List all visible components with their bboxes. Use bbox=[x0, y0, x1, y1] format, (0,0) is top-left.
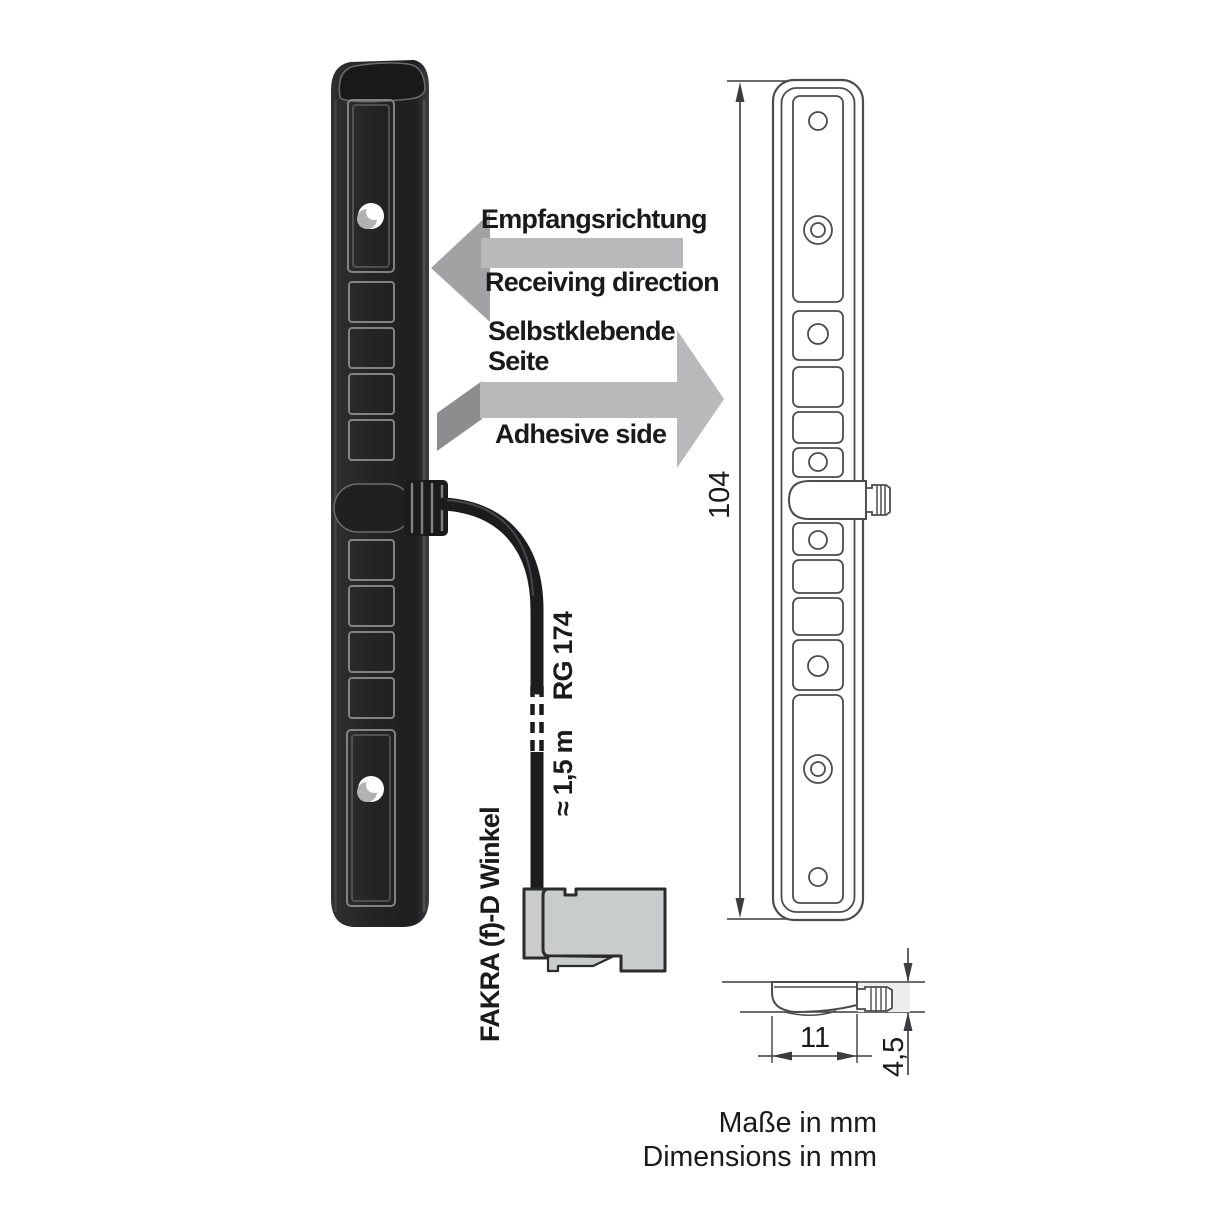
figure-graphics bbox=[0, 0, 1214, 1214]
receiving-direction-label-de: Empfangsrichtung bbox=[481, 205, 707, 235]
adhesive-side-label-de: Selbstklebende Seite bbox=[488, 317, 675, 376]
dim-width-value: 11 bbox=[800, 1023, 830, 1055]
right-arrow-tail bbox=[437, 381, 482, 451]
snap-in-connector bbox=[789, 481, 890, 519]
dim-height-value: 104 bbox=[705, 471, 737, 519]
cable-break-dashes bbox=[533, 686, 542, 754]
fakra-connector-label: FAKRA (f)-D Winkel bbox=[476, 807, 506, 1042]
dim-arrow-left-icon bbox=[772, 1052, 792, 1061]
dim-arrow-right-icon bbox=[837, 1052, 857, 1061]
dim-depth-value: 4,5 bbox=[879, 1037, 911, 1077]
dimension-drawing bbox=[722, 80, 925, 1075]
cable-spec-label: ≈ 1,5 mRG 174 bbox=[549, 612, 579, 816]
units-note-de: Maße in mm bbox=[437, 1106, 877, 1140]
fakra-latch bbox=[548, 956, 612, 971]
units-note: Maße in mm Dimensions in mm bbox=[437, 1106, 877, 1174]
cable-length-label: ≈ 1,5 m bbox=[548, 730, 578, 816]
antenna-top-face bbox=[339, 63, 425, 102]
adhesive-side-label-en: Adhesive side bbox=[495, 420, 666, 450]
side-view-outline bbox=[772, 982, 892, 1015]
antenna-datasheet-figure: Empfangsrichtung Receiving direction Sel… bbox=[0, 0, 1214, 1214]
adhesive-side-label-de-line2: Seite bbox=[488, 346, 549, 376]
receiving-direction-label-en: Receiving direction bbox=[485, 268, 719, 298]
cable-type-label: RG 174 bbox=[548, 612, 578, 700]
antenna-connector-boss bbox=[334, 480, 448, 536]
dim-arrow-down-icon bbox=[904, 963, 913, 982]
units-note-en: Dimensions in mm bbox=[437, 1140, 877, 1174]
dim-arrow-up-icon bbox=[904, 1012, 913, 1031]
dim-arrow-up-icon bbox=[736, 82, 745, 102]
fakra-connector bbox=[524, 889, 665, 971]
dim-arrow-down-icon bbox=[736, 898, 745, 918]
side-view-connector bbox=[857, 987, 892, 1011]
left-arrow-bar bbox=[481, 238, 683, 268]
adhesive-side-label-de-line1: Selbstklebende bbox=[488, 316, 675, 346]
